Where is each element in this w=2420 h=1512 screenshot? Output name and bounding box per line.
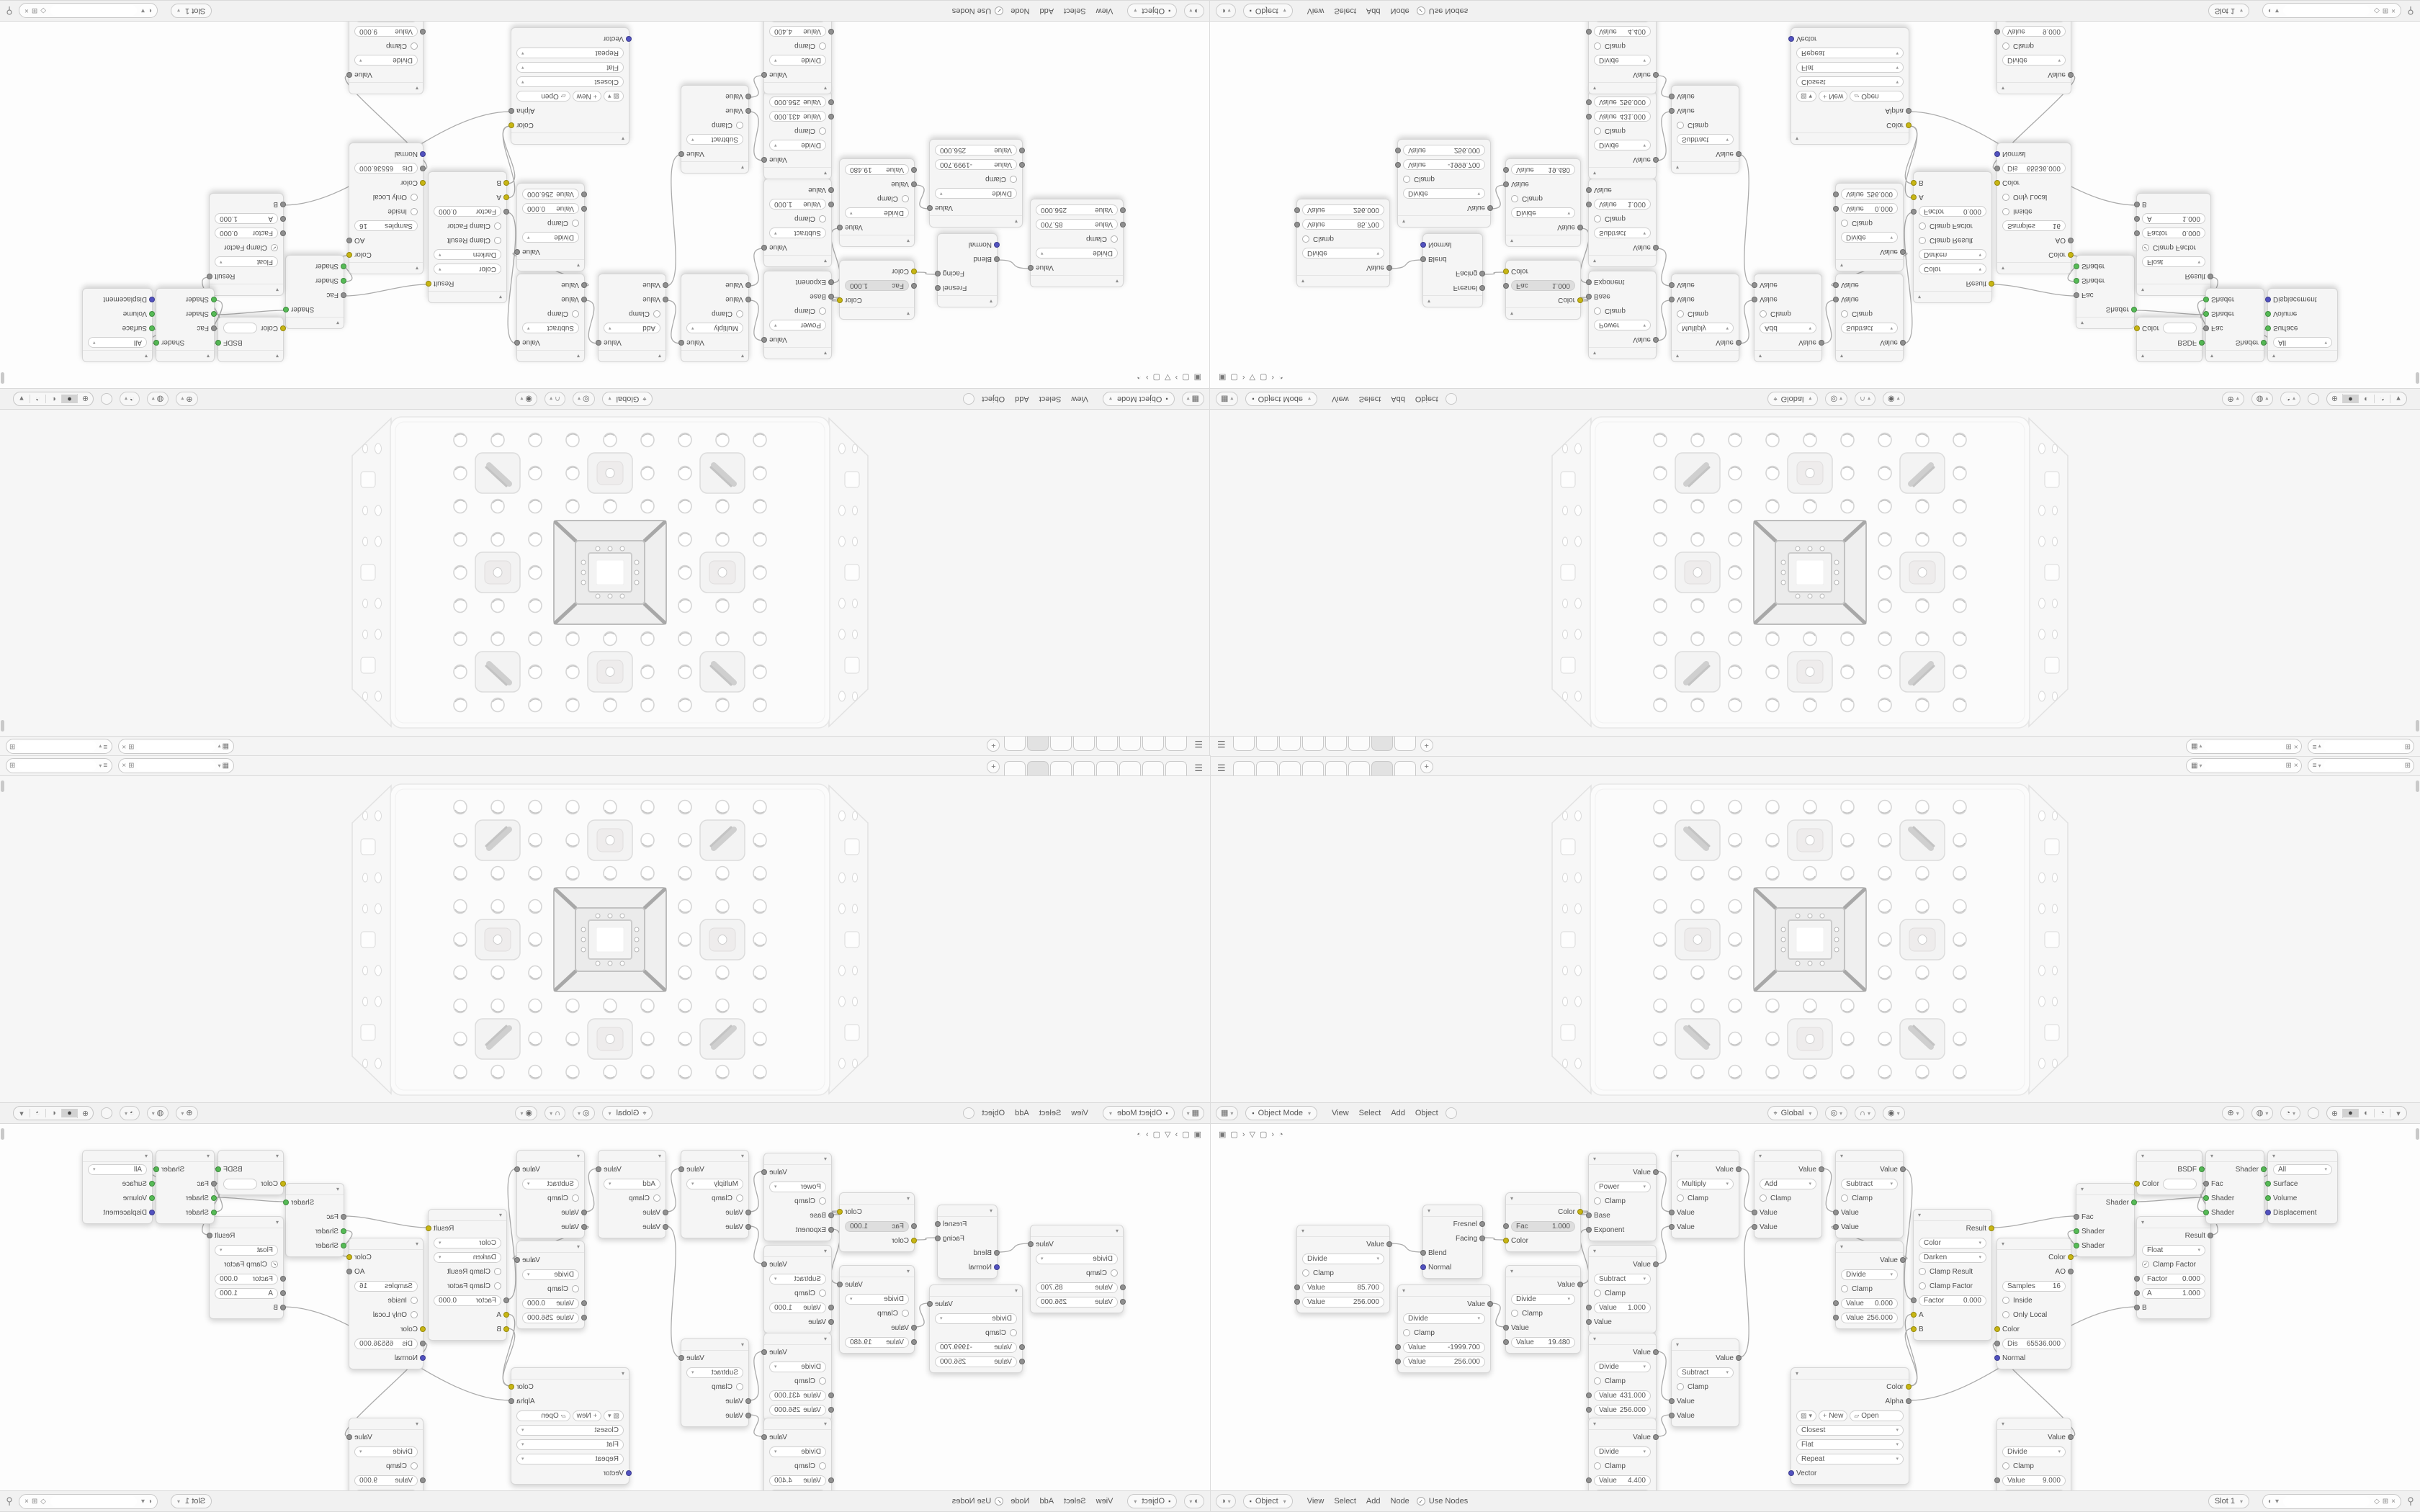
socket-gray[interactable] xyxy=(1833,1300,1839,1306)
node-dropdown[interactable]: Power▾ xyxy=(769,320,826,330)
socket-gray[interactable] xyxy=(280,1290,286,1296)
node-dropdown[interactable]: Subtract▾ xyxy=(1594,1274,1651,1284)
proportional-edit-button[interactable]: ◉ ▾ xyxy=(515,1106,537,1120)
node-collapse-chevron[interactable]: ▾ xyxy=(1589,1153,1656,1165)
socket-gray[interactable] xyxy=(1503,1325,1509,1331)
socket-gray[interactable] xyxy=(1906,108,1912,114)
node-image-texture[interactable]: ▾ColorAlpha▨▾+New▱OpenClosest▾Flat▾Repea… xyxy=(511,27,629,145)
workspace-tab[interactable] xyxy=(1348,761,1370,775)
node-value-field[interactable]: Factor0.000 xyxy=(1919,206,1986,217)
workspace-tab[interactable] xyxy=(1371,737,1393,751)
shading-material-button[interactable]: ◐ xyxy=(2359,1109,2375,1117)
socket-gray[interactable] xyxy=(1994,166,2000,171)
show-overlays-button[interactable]: ◍ ▾ xyxy=(147,392,169,406)
node-dropdown[interactable]: Multiply▾ xyxy=(686,1179,743,1189)
menu-node[interactable]: Node xyxy=(1010,6,1029,15)
socket-gray[interactable] xyxy=(280,1305,286,1310)
node-mix-shader-2[interactable]: ▾ShaderFacShaderShader xyxy=(156,288,215,362)
node-value-field[interactable]: Value431.000 xyxy=(769,111,826,122)
image-browse-button[interactable]: ▨▾ xyxy=(1796,1410,1816,1421)
socket-gray[interactable] xyxy=(1900,340,1906,346)
node-value-field[interactable]: Fac1.000 xyxy=(845,280,909,291)
socket-gray[interactable] xyxy=(503,1297,509,1303)
material-selector[interactable]: ◐ ▾ ◇ ⊞ × xyxy=(19,3,158,18)
socket-gray[interactable] xyxy=(761,1349,767,1355)
node-multiply[interactable]: ▾ValueMultiply▾ClampValueValue xyxy=(1671,1150,1739,1238)
node-dropdown[interactable]: Divide▾ xyxy=(1403,188,1485,199)
node-invert[interactable]: ▾ColorFac1.000Color xyxy=(1505,260,1581,320)
node-checkbox[interactable] xyxy=(1594,1197,1601,1205)
socket-gray[interactable] xyxy=(1911,1297,1917,1303)
node-mix-darken[interactable]: ▾ResultColor▾Darken▾Clamp ResultClamp Fa… xyxy=(428,171,507,303)
editor-type-button[interactable]: ▦ ▾ xyxy=(1182,392,1204,406)
node-collapse-chevron[interactable]: ▾ xyxy=(764,1418,831,1430)
node-dropdown[interactable]: Divide▾ xyxy=(1302,1254,1384,1264)
transform-orientation-select[interactable]: ⌖ Global ▾ xyxy=(1767,1106,1819,1120)
socket-gray[interactable] xyxy=(828,114,834,120)
menu-view[interactable]: View xyxy=(1096,1497,1113,1506)
node-invert[interactable]: ▾ColorFac1.000Color xyxy=(839,260,915,320)
workspace-tab[interactable] xyxy=(1279,737,1301,751)
node-checkbox[interactable] xyxy=(1760,310,1767,318)
socket-gray[interactable] xyxy=(935,271,941,276)
socket-gray[interactable] xyxy=(828,294,834,300)
node-collapse-chevron[interactable]: ▾ xyxy=(1836,259,1903,271)
shading-dropdown[interactable]: ▾ xyxy=(14,394,30,403)
socket-gray[interactable] xyxy=(828,202,834,207)
socket-green[interactable] xyxy=(341,1228,346,1234)
shading-material-button[interactable]: ◐ xyxy=(45,395,61,403)
node-collapse-chevron[interactable]: ▾ xyxy=(1836,1151,1903,1162)
menu-select[interactable]: Select xyxy=(1039,395,1062,403)
node-power[interactable]: ▾ValuePower▾ClampBaseExponent xyxy=(1588,1153,1657,1241)
node-dropdown[interactable]: Float▾ xyxy=(2142,1245,2205,1256)
socket-gray[interactable] xyxy=(828,1212,834,1218)
node-checkbox[interactable] xyxy=(1841,1194,1848,1202)
node-dropdown[interactable]: Subtract▾ xyxy=(522,323,579,333)
socket-gray[interactable] xyxy=(211,1181,217,1187)
socket-blue[interactable] xyxy=(1420,242,1426,248)
node-checkbox[interactable] xyxy=(411,194,418,201)
app-menu-icon[interactable]: ☰ xyxy=(1217,763,1226,773)
socket-yellow[interactable] xyxy=(2068,1254,2074,1260)
socket-gray[interactable] xyxy=(2134,230,2140,236)
node-dropdown[interactable]: Flat▾ xyxy=(1796,62,1904,73)
node-dropdown[interactable]: Divide▾ xyxy=(354,1446,418,1457)
node-value-field[interactable]: Value256.000 xyxy=(1594,22,1651,23)
shader-context-select[interactable]: ▪ Object ▾ xyxy=(1243,1494,1293,1508)
node-collapse-chevron[interactable]: ▾ xyxy=(517,259,584,271)
node-collapse-chevron[interactable]: ▾ xyxy=(156,350,214,361)
show-overlays-button[interactable]: ◍ ▾ xyxy=(147,1106,169,1120)
socket-gray[interactable] xyxy=(2068,238,2074,243)
node-value-field[interactable]: Value19.480 xyxy=(845,164,909,175)
unlink-material-icon[interactable]: × xyxy=(24,1498,29,1506)
node-add[interactable]: ▾ValueAdd▾ClampValueValue xyxy=(1754,274,1822,362)
socket-gray[interactable] xyxy=(927,205,933,211)
node-collapse-chevron[interactable]: ▾ xyxy=(2206,1151,2264,1162)
socket-gray[interactable] xyxy=(1736,1166,1742,1172)
viewlayer-selector[interactable]: ≡ ▾ ⊞ xyxy=(6,758,112,773)
node-value-field[interactable]: Value256.000 xyxy=(2002,1490,2066,1491)
menu-select[interactable]: Select xyxy=(1039,1109,1062,1117)
node-checkbox[interactable] xyxy=(1511,195,1518,202)
node-dropdown[interactable]: Divide▾ xyxy=(1403,1313,1485,1324)
node-dropdown[interactable]: Divide▾ xyxy=(845,1294,909,1305)
node-collapse-chevron[interactable]: ▾ xyxy=(681,1151,748,1162)
node-collapse-chevron[interactable]: ▾ xyxy=(210,1217,283,1228)
menu-object[interactable]: Object xyxy=(982,395,1005,403)
socket-green[interactable] xyxy=(2131,1200,2137,1205)
socket-yellow[interactable] xyxy=(1503,269,1509,274)
show-gizmo-button[interactable]: ⊕ ▾ xyxy=(176,1106,197,1120)
socket-green[interactable] xyxy=(341,264,346,269)
node-subtract-2[interactable]: ▾ValueSubtract▾ClampValueValue xyxy=(1671,1338,1739,1427)
socket-blue[interactable] xyxy=(1994,1355,2000,1361)
fake-user-icon[interactable]: ◇ xyxy=(40,1498,46,1506)
node-checkbox[interactable] xyxy=(1594,1377,1601,1385)
mode-select[interactable]: ▪ Object Mode ▾ xyxy=(1245,392,1317,406)
socket-gray[interactable] xyxy=(745,94,751,99)
socket-green[interactable] xyxy=(2199,340,2205,346)
socket-green[interactable] xyxy=(211,297,217,302)
socket-gray[interactable] xyxy=(1653,1349,1659,1355)
socket-gray[interactable] xyxy=(1395,148,1401,153)
unlink-material-icon[interactable]: × xyxy=(2391,6,2396,14)
socket-gray[interactable] xyxy=(1669,1224,1675,1230)
socket-gray[interactable] xyxy=(280,230,286,236)
socket-gray[interactable] xyxy=(1819,1166,1824,1172)
menu-add[interactable]: Add xyxy=(1391,395,1405,403)
socket-gray[interactable] xyxy=(911,1325,917,1331)
node-value-field[interactable]: Fac1.000 xyxy=(1511,280,1575,291)
node-checkbox[interactable]: ✓ xyxy=(271,244,278,251)
node-dropdown[interactable]: Divide▾ xyxy=(769,140,826,150)
node-checkbox[interactable] xyxy=(1594,42,1601,50)
menu-add[interactable]: Add xyxy=(1366,1497,1381,1506)
node-value-field[interactable]: Value256.000 xyxy=(1841,1313,1898,1323)
node-checkbox[interactable] xyxy=(2002,1297,2009,1304)
socket-gray[interactable] xyxy=(1019,1359,1025,1364)
node-image-texture[interactable]: ▾ColorAlpha▨▾+New▱OpenClosest▾Flat▾Repea… xyxy=(511,1367,629,1485)
socket-gray[interactable] xyxy=(2134,202,2140,207)
pivot-point-button[interactable]: ◎ ▾ xyxy=(1825,1106,1847,1120)
socket-gray[interactable] xyxy=(663,1224,668,1230)
image-browse-button[interactable]: ▨▾ xyxy=(604,91,624,102)
node-dropdown[interactable]: Color▾ xyxy=(1919,1238,1986,1248)
node-multiply[interactable]: ▾ValueMultiply▾ClampValueValue xyxy=(681,1150,749,1238)
node-dropdown[interactable]: Divide▾ xyxy=(769,1362,826,1372)
node-checkbox[interactable] xyxy=(1919,237,1926,244)
node-divide-44[interactable]: ▾ValueDivide▾ClampValue4.400Value256.000 xyxy=(763,22,832,94)
scene-name-field[interactable] xyxy=(136,741,215,752)
socket-gray[interactable] xyxy=(1900,1166,1906,1172)
node-value-field[interactable]: Value0.000 xyxy=(522,203,579,214)
socket-gray[interactable] xyxy=(994,256,1000,262)
menu-add[interactable]: Add xyxy=(1015,395,1029,403)
node-value-field[interactable]: Value256.000 xyxy=(1036,204,1118,215)
socket-yellow[interactable] xyxy=(911,269,917,274)
socket-gray[interactable] xyxy=(828,1477,834,1483)
socket-gray[interactable] xyxy=(346,1434,352,1440)
node-collapse-chevron[interactable]: ▾ xyxy=(599,1151,665,1162)
node-dropdown[interactable]: Darken▾ xyxy=(1919,1252,1986,1263)
node-subtract-1[interactable]: ▾ValueSubtract▾ClampValue1.000Value xyxy=(1588,179,1657,267)
unlink-scene-icon[interactable]: × xyxy=(122,742,126,750)
pivot-point-button[interactable]: ◎ ▾ xyxy=(573,392,595,406)
node-value-field[interactable]: Value256.000 xyxy=(935,145,1017,156)
viewlayer-name-field[interactable] xyxy=(2323,741,2403,752)
snap-button[interactable]: ∩ ▾ xyxy=(1855,1106,1875,1120)
socket-green[interactable] xyxy=(2074,1243,2079,1248)
new-material-icon[interactable]: ⊞ xyxy=(32,1498,37,1506)
node-collapse-chevron[interactable]: ▾ xyxy=(930,1285,1022,1297)
node-checkbox[interactable]: ✓ xyxy=(271,1261,278,1268)
node-collapse-chevron[interactable]: ▾ xyxy=(1997,82,2071,94)
socket-gray[interactable] xyxy=(2134,1276,2140,1282)
socket-blue[interactable] xyxy=(1788,1470,1794,1476)
node-checkbox[interactable] xyxy=(411,42,418,50)
mode-options-button[interactable] xyxy=(963,1107,974,1119)
show-overlays-button[interactable]: ◍ ▾ xyxy=(2251,392,2274,406)
node-mix-shader-2[interactable]: ▾ShaderFacShaderShader xyxy=(2205,288,2264,362)
socket-gray[interactable] xyxy=(1586,279,1592,285)
node-collapse-chevron[interactable]: ▾ xyxy=(1589,167,1656,179)
material-name-field[interactable] xyxy=(2283,5,2370,16)
node-checkbox[interactable] xyxy=(1594,215,1601,222)
image-open-button[interactable]: ▱Open xyxy=(516,1410,570,1421)
node-dropdown[interactable]: Divide▾ xyxy=(1594,140,1651,150)
node-divide-9[interactable]: ▾ValueDivide▾ClampValue9.000Value256.000 xyxy=(349,1418,423,1490)
node-mix-darken[interactable]: ▾ResultColor▾Darken▾Clamp ResultClamp Fa… xyxy=(1913,1209,1992,1341)
socket-gray[interactable] xyxy=(346,72,352,78)
socket-gray[interactable] xyxy=(1833,192,1839,197)
node-add[interactable]: ▾ValueAdd▾ClampValueValue xyxy=(598,1150,666,1238)
node-checkbox[interactable] xyxy=(819,215,826,222)
socket-gray[interactable] xyxy=(503,209,509,215)
socket-gray[interactable] xyxy=(994,1250,1000,1256)
shading-wireframe-button[interactable]: ⊕ xyxy=(2327,394,2343,403)
node-value-field[interactable]: Value9.000 xyxy=(354,1475,418,1486)
new-scene-icon[interactable]: ⊞ xyxy=(128,762,134,770)
socket-gray[interactable] xyxy=(935,1236,941,1241)
node-checkbox[interactable] xyxy=(572,1194,579,1202)
node-dropdown[interactable]: Divide▾ xyxy=(522,232,579,243)
node-layer-weight[interactable]: ▾FresnelFacingBlendNormal xyxy=(937,233,998,307)
workspace-tab[interactable] xyxy=(1027,761,1049,775)
socket-gray[interactable] xyxy=(911,181,917,187)
socket-gray[interactable] xyxy=(508,1398,514,1404)
add-workspace-button[interactable]: + xyxy=(1420,739,1433,752)
socket-blue[interactable] xyxy=(1420,1264,1426,1270)
node-divide-a[interactable]: ▾ValueDivide▾ClampValue85.700Value256.00… xyxy=(1030,1225,1124,1313)
node-diffuse[interactable]: ▾BSDFColor xyxy=(2136,317,2202,362)
workspace-tab[interactable] xyxy=(1096,761,1118,775)
socket-yellow[interactable] xyxy=(503,1326,509,1332)
socket-gray[interactable] xyxy=(420,166,426,171)
image-open-button[interactable]: ▱Open xyxy=(1850,1410,1904,1421)
socket-gray[interactable] xyxy=(1833,206,1839,212)
node-checkbox[interactable] xyxy=(1919,222,1926,230)
socket-blue[interactable] xyxy=(420,151,426,157)
node-checkbox[interactable] xyxy=(1677,122,1684,129)
node-checkbox[interactable] xyxy=(1677,310,1684,318)
node-collapse-chevron[interactable]: ▾ xyxy=(1297,1225,1389,1237)
node-divide-9[interactable]: ▾ValueDivide▾ClampValue9.000Value256.000 xyxy=(1996,1418,2071,1490)
node-collapse-chevron[interactable]: ▾ xyxy=(286,1184,344,1195)
new-material-icon[interactable]: ⊞ xyxy=(2383,1498,2388,1506)
node-collapse-chevron[interactable]: ▾ xyxy=(681,1339,748,1351)
menu-add[interactable]: Add xyxy=(1040,6,1054,15)
node-checkbox[interactable] xyxy=(1919,1268,1926,1275)
node-power[interactable]: ▾ValuePower▾ClampBaseExponent xyxy=(1588,271,1657,359)
node-collapse-chevron[interactable]: ▾ xyxy=(1672,350,1739,361)
node-collapse-chevron[interactable]: ▾ xyxy=(764,167,831,179)
node-dropdown[interactable]: Repeat▾ xyxy=(1796,48,1904,58)
socket-gray[interactable] xyxy=(828,279,834,285)
node-value-field[interactable]: Value256.000 xyxy=(935,1356,1017,1367)
node-divide-b[interactable]: ▾ValueDivide▾ClampValue-1999.700Value256… xyxy=(1397,1284,1491,1373)
scene-selector[interactable]: ▦ ▾ ⊞ × xyxy=(118,758,234,773)
workspace-tab[interactable] xyxy=(1394,761,1416,775)
node-collapse-chevron[interactable]: ▾ xyxy=(1589,82,1656,94)
image-new-button[interactable]: +New xyxy=(573,1410,601,1421)
socket-gray[interactable] xyxy=(1586,1319,1592,1325)
unlink-material-icon[interactable]: × xyxy=(2391,1498,2396,1506)
node-collapse-chevron[interactable]: ▾ xyxy=(286,317,344,328)
node-checkbox[interactable] xyxy=(1677,1383,1684,1390)
node-dropdown[interactable]: Divide▾ xyxy=(769,55,826,66)
node-mix-shader-2[interactable]: ▾ShaderFacShaderShader xyxy=(2205,1150,2264,1224)
node-collapse-chevron[interactable]: ▾ xyxy=(218,350,283,361)
node-collapse-chevron[interactable]: ▾ xyxy=(83,1151,152,1162)
node-collapse-chevron[interactable]: ▾ xyxy=(1297,275,1389,287)
scene-name-field[interactable] xyxy=(2205,760,2284,771)
socket-gray[interactable] xyxy=(1028,1241,1034,1247)
node-dropdown[interactable]: Color▾ xyxy=(1919,264,1986,274)
shading-extra-button[interactable] xyxy=(2308,393,2319,405)
node-divide-44[interactable]: ▾ValueDivide▾ClampValue4.400Value256.000 xyxy=(763,1418,832,1490)
pin-button[interactable] xyxy=(2407,6,2414,15)
node-dropdown[interactable]: Divide▾ xyxy=(1594,1446,1651,1457)
snap-button[interactable]: ∩ ▾ xyxy=(544,392,565,406)
viewport-3d[interactable] xyxy=(1210,776,2420,1102)
node-checkbox[interactable] xyxy=(736,1194,743,1202)
node-collapse-chevron[interactable]: ▾ xyxy=(2076,317,2134,328)
socket-gray[interactable] xyxy=(1586,202,1592,207)
node-power[interactable]: ▾ValuePower▾ClampBaseExponent xyxy=(763,1153,832,1241)
socket-gray[interactable] xyxy=(1586,99,1592,105)
viewport-3d[interactable] xyxy=(0,776,1210,1102)
shader-context-select[interactable]: ▪ Object ▾ xyxy=(1243,4,1293,18)
socket-gray[interactable] xyxy=(1577,1282,1583,1287)
socket-gray[interactable] xyxy=(678,151,684,157)
xray-toggle-button[interactable]: ◔ ▾ xyxy=(2280,392,2300,406)
socket-green[interactable] xyxy=(2074,264,2079,269)
node-collapse-chevron[interactable]: ▾ xyxy=(1506,1193,1580,1205)
node-value-field[interactable]: Samples16 xyxy=(2002,220,2066,231)
node-value-field[interactable]: Value-1999.700 xyxy=(1403,159,1485,170)
socket-yellow[interactable] xyxy=(1911,1326,1917,1332)
node-diffuse[interactable]: ▾BSDFColor xyxy=(2136,1150,2202,1195)
socket-gray[interactable] xyxy=(745,1413,751,1418)
workspace-tab[interactable] xyxy=(1256,737,1278,751)
new-viewlayer-icon[interactable]: ⊞ xyxy=(9,742,15,750)
socket-gray[interactable] xyxy=(1120,1299,1126,1305)
shading-dropdown[interactable]: ▾ xyxy=(14,1109,30,1118)
node-divide-a[interactable]: ▾ValueDivide▾ClampValue85.700Value256.00… xyxy=(1296,1225,1390,1313)
node-checkbox[interactable] xyxy=(819,1197,826,1205)
node-divide-c[interactable]: ▾ValueDivide▾ClampValueValue19.480 xyxy=(839,158,915,247)
node-value-field[interactable]: A1.000 xyxy=(215,213,278,224)
material-selector[interactable]: ◐ ▾ ◇ ⊞ × xyxy=(2262,3,2401,18)
workspace-tab[interactable] xyxy=(1142,737,1164,751)
socket-gray[interactable] xyxy=(1752,282,1757,288)
workspace-tab[interactable] xyxy=(1119,761,1141,775)
node-mix-shader-2[interactable]: ▾ShaderFacShaderShader xyxy=(156,1150,215,1224)
node-value-field[interactable]: Value9.000 xyxy=(2002,26,2066,37)
node-ao[interactable]: ▾ColorAOSamples16InsideOnly LocalColorDi… xyxy=(1996,1238,2071,1369)
node-collapse-chevron[interactable]: ▾ xyxy=(2137,350,2202,361)
socket-gray[interactable] xyxy=(346,238,352,243)
node-checkbox[interactable] xyxy=(494,237,501,244)
socket-gray[interactable] xyxy=(1586,187,1592,193)
node-image-texture[interactable]: ▾ColorAlpha▨▾+New▱OpenClosest▾Flat▾Repea… xyxy=(1791,27,1909,145)
node-dropdown[interactable]: Closest▾ xyxy=(1796,76,1904,87)
socket-gray[interactable] xyxy=(911,167,917,173)
socket-green[interactable] xyxy=(2203,297,2209,302)
socket-gray[interactable] xyxy=(1503,1223,1509,1229)
node-value-field[interactable]: Value256.000 xyxy=(522,1313,579,1323)
workspace-tab[interactable] xyxy=(1348,737,1370,751)
socket-gray[interactable] xyxy=(1653,337,1659,343)
socket-gray[interactable] xyxy=(678,340,684,346)
socket-gray[interactable] xyxy=(1294,222,1300,228)
node-collapse-chevron[interactable]: ▾ xyxy=(938,295,997,307)
node-checkbox[interactable] xyxy=(2002,1462,2009,1470)
socket-blue[interactable] xyxy=(994,242,1000,248)
socket-gray[interactable] xyxy=(1900,1257,1906,1263)
node-layer-weight[interactable]: ▾FresnelFacingBlendNormal xyxy=(1422,1205,1483,1279)
scene-selector[interactable]: ▦ ▾ ⊞ × xyxy=(2186,758,2302,773)
scene-name-field[interactable] xyxy=(136,760,215,771)
mode-options-button[interactable] xyxy=(963,393,974,405)
node-checkbox[interactable] xyxy=(819,127,826,135)
socket-gray[interactable] xyxy=(1653,245,1659,251)
socket-gray[interactable] xyxy=(1028,265,1034,271)
node-collapse-chevron[interactable]: ▾ xyxy=(1398,1285,1490,1297)
socket-blue[interactable] xyxy=(2265,1210,2271,1215)
socket-gray[interactable] xyxy=(828,1392,834,1398)
node-dropdown[interactable]: Subtract▾ xyxy=(1594,228,1651,238)
node-collapse-chevron[interactable]: ▾ xyxy=(2137,1151,2202,1162)
socket-yellow[interactable] xyxy=(508,122,514,128)
socket-gray[interactable] xyxy=(420,1341,426,1346)
node-checkbox[interactable]: ✓ xyxy=(2142,244,2149,251)
node-value-field[interactable]: Value4.400 xyxy=(1594,1475,1651,1486)
socket-gray[interactable] xyxy=(745,1210,751,1215)
node-collapse-chevron[interactable]: ▾ xyxy=(517,1151,584,1162)
shading-wireframe-button[interactable]: ⊕ xyxy=(77,394,93,403)
show-gizmo-button[interactable]: ⊕ ▾ xyxy=(176,392,197,406)
workspace-tab[interactable] xyxy=(1073,761,1095,775)
viewlayer-name-field[interactable] xyxy=(2323,760,2403,771)
node-dropdown[interactable]: Divide▾ xyxy=(769,1446,826,1457)
viewlayer-selector[interactable]: ≡ ▾ ⊞ xyxy=(2308,758,2414,773)
socket-green[interactable] xyxy=(149,325,155,331)
node-value-field[interactable]: Samples16 xyxy=(354,1281,418,1292)
color-swatch-field[interactable] xyxy=(2163,323,2197,333)
